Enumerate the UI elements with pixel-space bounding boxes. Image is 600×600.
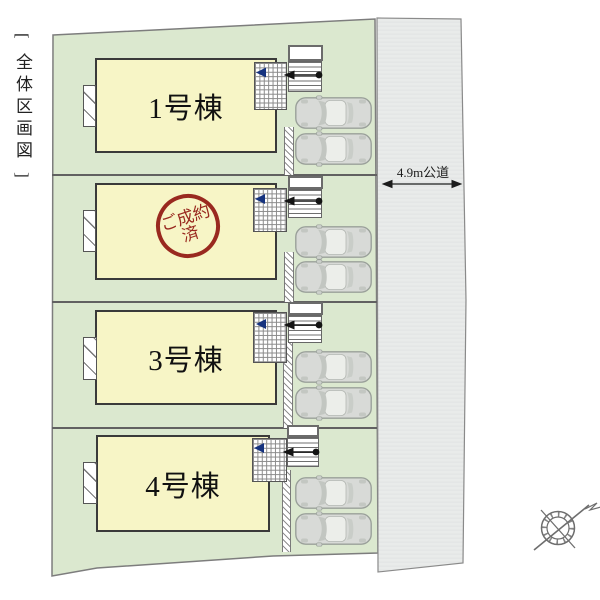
parked-car xyxy=(296,386,371,420)
building-3-label: 3号棟 xyxy=(148,337,224,379)
stairs-icon-2 xyxy=(288,189,322,218)
site-plan-diagram: 1号棟 3号棟 4号棟 ご成約 済 xyxy=(0,0,600,600)
porch-grid-4 xyxy=(252,438,287,482)
sold-stamp-line2: 済 xyxy=(180,223,202,245)
entrance-canopy-2 xyxy=(288,176,323,189)
parked-car xyxy=(296,96,371,130)
entrance-canopy-3 xyxy=(288,302,323,315)
porch-grid-1 xyxy=(254,62,287,110)
setback-hatch-1 xyxy=(83,85,96,127)
boundary-strip-1 xyxy=(284,127,294,175)
entrance-canopy-1 xyxy=(288,45,323,61)
parked-car xyxy=(296,350,371,384)
stairs-icon-1 xyxy=(288,61,322,92)
building-4: 4号棟 xyxy=(96,435,270,532)
building-4-label: 4号棟 xyxy=(145,463,221,505)
stairs-icon-4 xyxy=(287,437,319,467)
compass-icon xyxy=(534,503,600,550)
setback-hatch-2 xyxy=(83,210,96,252)
parked-car xyxy=(296,260,371,294)
stairs-icon-3 xyxy=(288,315,322,343)
setback-hatch-4 xyxy=(83,462,97,504)
building-1-label: 1号棟 xyxy=(148,85,224,127)
parked-car xyxy=(296,512,371,546)
porch-grid-3 xyxy=(253,312,287,363)
setback-hatch-3 xyxy=(83,337,97,380)
entrance-canopy-4 xyxy=(287,425,319,437)
road-width-arrow xyxy=(383,181,461,188)
parked-car xyxy=(296,132,371,166)
boundary-strip-4 xyxy=(282,470,291,552)
road-surface xyxy=(377,18,466,572)
building-3: 3号棟 xyxy=(95,310,277,405)
building-1: 1号棟 xyxy=(95,58,277,153)
parked-car xyxy=(296,476,371,510)
page-title: [ 全体区画図 ] xyxy=(10,33,35,183)
boundary-strip-2 xyxy=(284,252,294,302)
parked-car xyxy=(296,225,371,259)
porch-grid-2 xyxy=(253,188,287,232)
road-label: 4.9m公道 xyxy=(386,162,460,181)
